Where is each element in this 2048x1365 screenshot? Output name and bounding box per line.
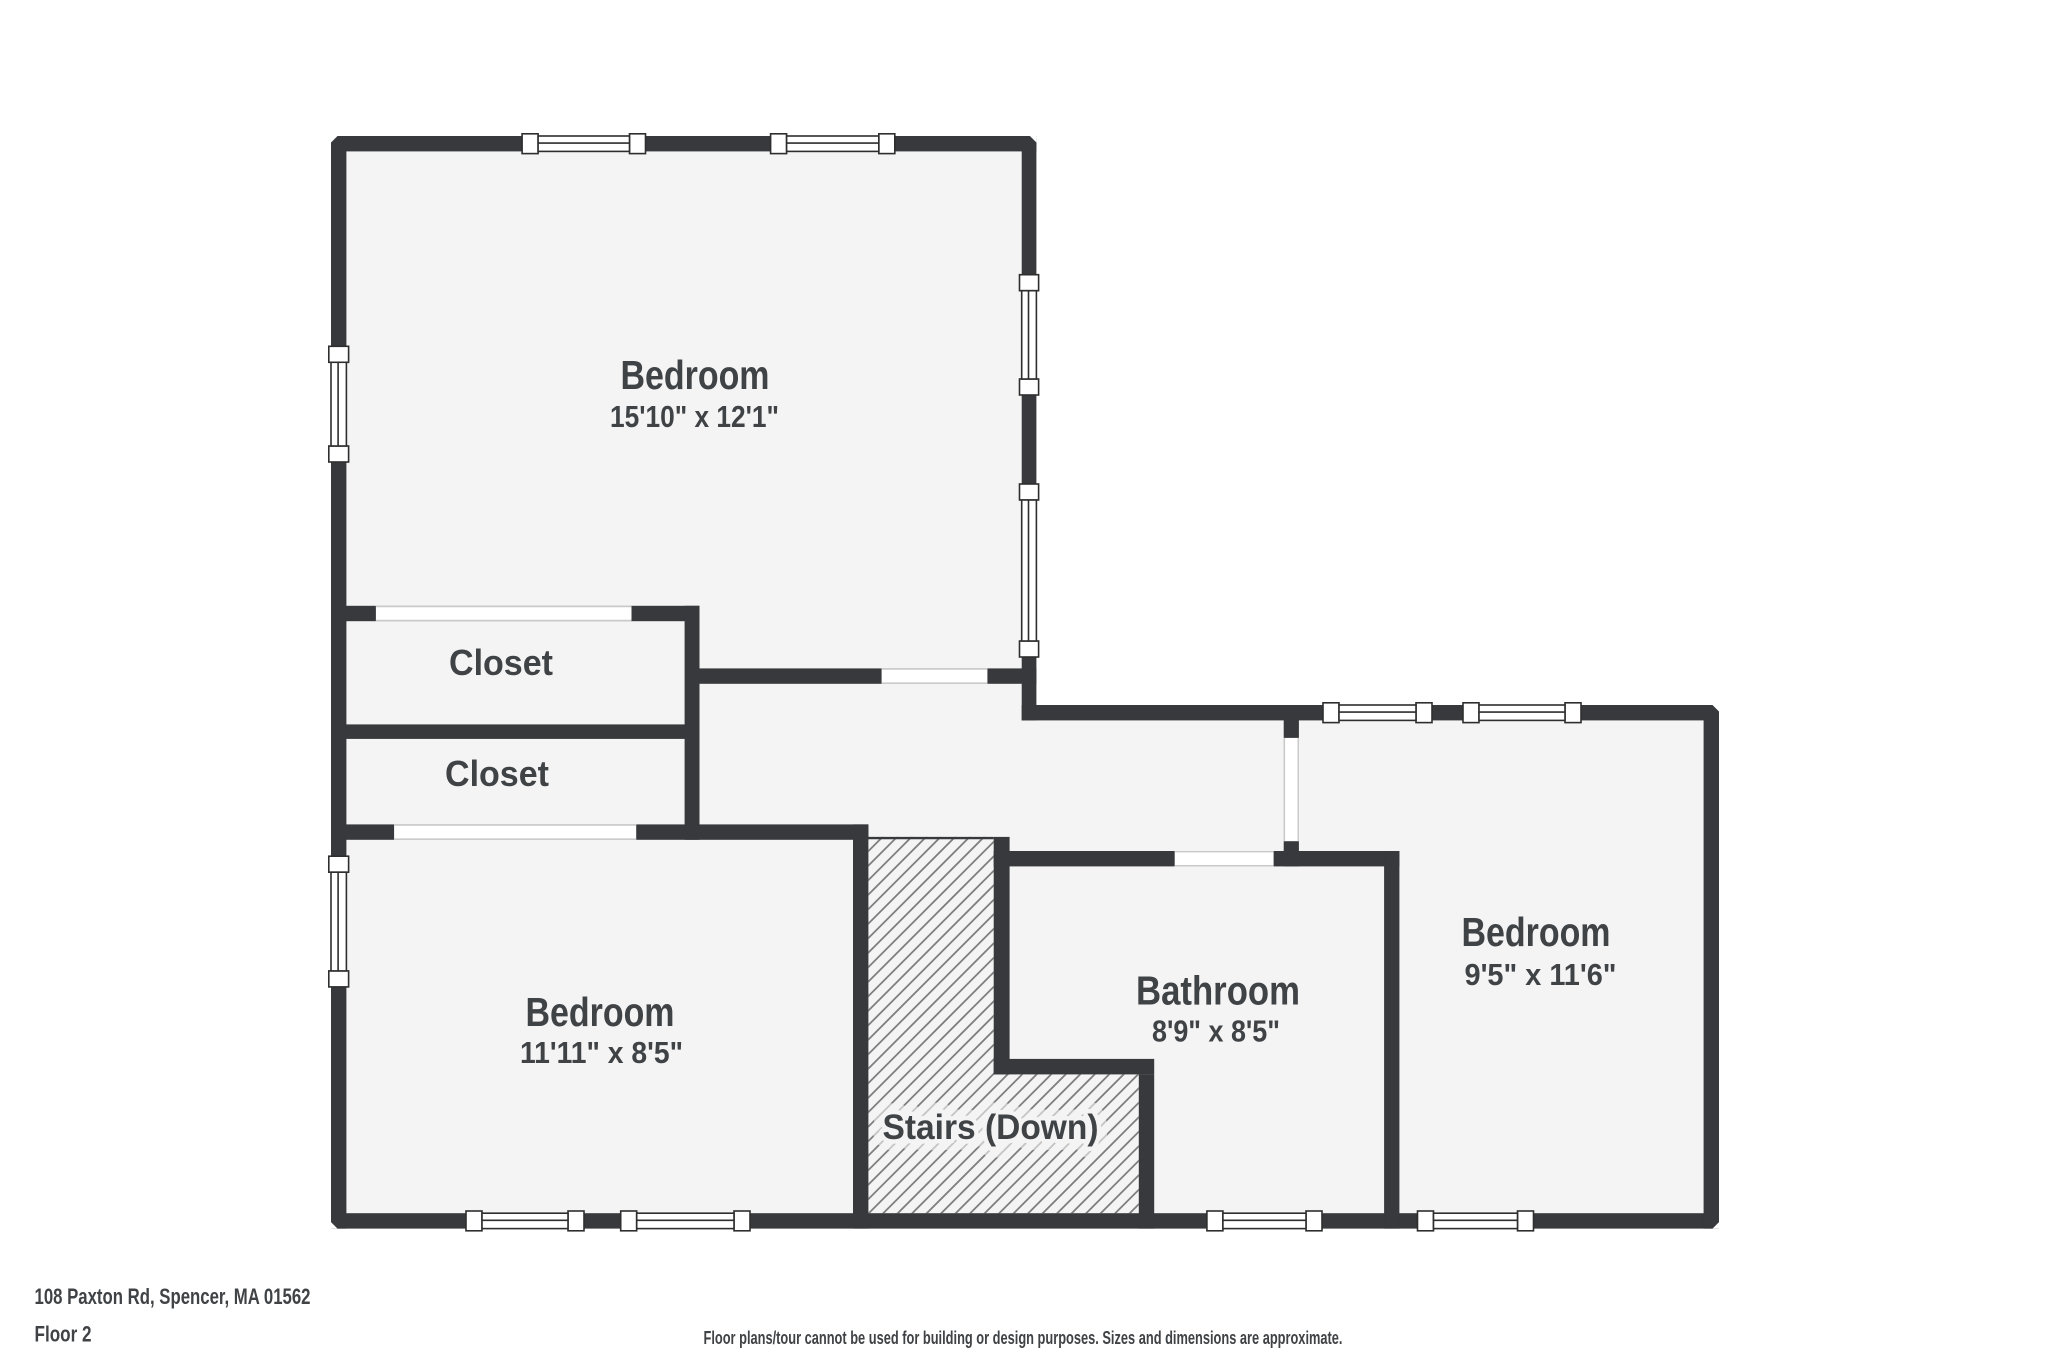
- svg-text:Stairs (Down): Stairs (Down): [883, 1107, 1099, 1147]
- svg-text:11'11" x 8'5": 11'11" x 8'5": [520, 1035, 683, 1070]
- svg-text:108 Paxton Rd, Spencer, MA 015: 108 Paxton Rd, Spencer, MA 01562: [35, 1284, 311, 1309]
- svg-text:15'10" x 12'1": 15'10" x 12'1": [610, 399, 779, 434]
- svg-text:Bedroom: Bedroom: [526, 989, 675, 1035]
- svg-text:Bedroom: Bedroom: [621, 352, 770, 398]
- svg-text:Bedroom: Bedroom: [1462, 909, 1611, 955]
- svg-text:Floor plans/tour cannot be use: Floor plans/tour cannot be used for buil…: [704, 1328, 1343, 1348]
- svg-text:Closet: Closet: [445, 753, 549, 794]
- svg-text:9'5" x 11'6": 9'5" x 11'6": [1465, 957, 1617, 992]
- svg-text:Bathroom: Bathroom: [1136, 967, 1300, 1013]
- svg-text:Floor 2: Floor 2: [35, 1322, 92, 1347]
- svg-text:Closet: Closet: [449, 642, 553, 683]
- svg-text:8'9" x 8'5": 8'9" x 8'5": [1152, 1014, 1280, 1049]
